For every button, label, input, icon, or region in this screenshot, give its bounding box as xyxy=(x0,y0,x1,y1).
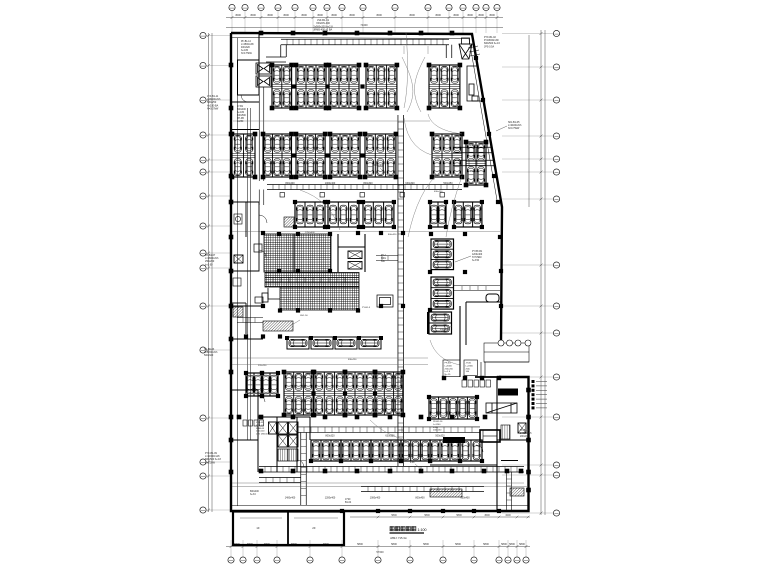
svg-text:630x250: 630x250 xyxy=(470,145,479,147)
svg-text:5800: 5800 xyxy=(424,514,430,517)
svg-text:5800: 5800 xyxy=(357,542,363,546)
svg-text:5800: 5800 xyxy=(391,542,397,546)
svg-text:JYSF: JYSF xyxy=(345,499,351,501)
svg-text:4500: 4500 xyxy=(235,13,241,17)
svg-text:150x100: 150x100 xyxy=(256,431,265,433)
svg-text:JB-1.50: JB-1.50 xyxy=(300,315,308,317)
svg-text:800x320: 800x320 xyxy=(363,182,373,185)
svg-text:800x400: 800x400 xyxy=(415,497,425,500)
svg-text:PF-B1: PF-B1 xyxy=(445,363,452,365)
svg-text:PF-B1-14: PF-B1-14 xyxy=(241,41,252,43)
svg-text:5800: 5800 xyxy=(391,514,397,517)
svg-text:m3/h: m3/h xyxy=(433,427,439,429)
svg-text:500x250: 500x250 xyxy=(443,182,453,185)
svg-text:5800: 5800 xyxy=(423,542,429,546)
svg-text:1:100: 1:100 xyxy=(418,528,427,532)
svg-text:4500: 4500 xyxy=(267,13,273,17)
svg-text:SYSTEM: SYSTEM xyxy=(472,257,482,259)
svg-text:JY-B1: JY-B1 xyxy=(466,363,473,365)
svg-text:5800: 5800 xyxy=(519,542,525,546)
svg-text:3200: 3200 xyxy=(505,514,511,517)
svg-text:2x250: 2x250 xyxy=(237,121,244,123)
svg-text:4500: 4500 xyxy=(435,13,441,17)
svg-text:320x250: 320x250 xyxy=(258,365,267,367)
svg-text:500x320: 500x320 xyxy=(435,435,445,438)
svg-text:4500: 4500 xyxy=(478,13,484,17)
svg-text:h+3.50: h+3.50 xyxy=(472,260,480,262)
svg-text:5800: 5800 xyxy=(456,514,462,517)
svg-text:4500: 4500 xyxy=(331,13,337,17)
svg-text:jRMB-400 x2 BA: jRMB-400 x2 BA xyxy=(313,29,333,32)
svg-text:L=4500m3/h: L=4500m3/h xyxy=(241,44,255,46)
svg-text:h+2.60: h+2.60 xyxy=(205,263,213,266)
svg-text:800x320: 800x320 xyxy=(325,435,335,438)
svg-text:5600x400: 5600x400 xyxy=(373,165,384,167)
svg-text:L=1800: L=1800 xyxy=(466,365,474,367)
svg-text:1000x400: 1000x400 xyxy=(325,182,336,185)
svg-text:XFB-02: XFB-02 xyxy=(256,425,264,427)
svg-text:PF-B1-12: PF-B1-12 xyxy=(520,430,531,432)
svg-text:1200x400: 1200x400 xyxy=(325,497,336,500)
svg-text:PY/PF-B1: PY/PF-B1 xyxy=(472,251,483,253)
svg-text:5800: 5800 xyxy=(455,542,461,546)
svg-text:1250x400: 1250x400 xyxy=(305,232,315,234)
svg-text:B1-04: B1-04 xyxy=(345,502,352,504)
svg-text:630x400: 630x400 xyxy=(460,497,470,500)
svg-text:L=1200: L=1200 xyxy=(433,424,441,426)
svg-text:630x250: 630x250 xyxy=(434,191,443,193)
svg-text:4500: 4500 xyxy=(467,13,473,17)
svg-text:4500: 4500 xyxy=(409,13,415,17)
svg-text:4500: 4500 xyxy=(349,13,355,17)
svg-text:400x320: 400x320 xyxy=(241,47,251,49)
svg-text:630x320: 630x320 xyxy=(405,182,415,185)
svg-text:800x400: 800x400 xyxy=(250,491,260,493)
svg-text:630x: 630x xyxy=(381,258,387,260)
svg-text:4500: 4500 xyxy=(484,514,490,517)
svg-text:500x320: 500x320 xyxy=(204,354,214,357)
svg-text:200x160: 200x160 xyxy=(433,430,442,432)
svg-text:5800: 5800 xyxy=(483,542,489,546)
svg-text:630x500: 630x500 xyxy=(237,115,247,117)
svg-text:250x200: 250x200 xyxy=(445,368,454,370)
svg-text:XFB-01: XFB-01 xyxy=(256,422,264,424)
svg-text:JY-B1: JY-B1 xyxy=(237,106,244,108)
svg-text:PY-1: PY-1 xyxy=(381,255,387,257)
svg-text:h+3.0: h+3.0 xyxy=(250,494,257,496)
svg-text:PY-B1-3: PY-B1-3 xyxy=(362,307,371,309)
svg-text:200x160: 200x160 xyxy=(520,436,530,438)
svg-text:h+2.6: h+2.6 xyxy=(445,371,451,373)
svg-text:630x500: 630x500 xyxy=(440,329,449,331)
svg-text:h+2.80: h+2.80 xyxy=(237,112,245,114)
svg-text:800x320: 800x320 xyxy=(388,234,397,236)
svg-text:4500: 4500 xyxy=(301,13,307,17)
svg-text:4500: 4500 xyxy=(376,13,382,17)
svg-text:N=.25: N=.25 xyxy=(445,374,452,376)
svg-text:630x250: 630x250 xyxy=(470,171,479,173)
svg-text:N=0.75kW: N=0.75kW xyxy=(508,127,520,130)
svg-text:4500: 4500 xyxy=(453,13,459,17)
svg-text:h+2.80: h+2.80 xyxy=(241,50,249,52)
svg-text:1400x400: 1400x400 xyxy=(285,497,296,500)
svg-text:4500: 4500 xyxy=(250,13,256,17)
svg-text:JPS-0.5A: JPS-0.5A xyxy=(484,45,495,48)
svg-text:4-B1: 4-B1 xyxy=(410,462,415,464)
svg-text:FH-FB: FH-FB xyxy=(237,118,244,120)
svg-text:800x400: 800x400 xyxy=(285,182,295,185)
svg-text:630x250: 630x250 xyxy=(348,359,357,361)
svg-text:74300: 74300 xyxy=(360,23,368,27)
svg-text:JSG DN100: JSG DN100 xyxy=(256,434,268,436)
svg-text:5800: 5800 xyxy=(509,542,515,546)
svg-text:JZMJ: 715.3m: JZMJ: 715.3m xyxy=(390,536,408,540)
svg-text:5800: 5800 xyxy=(501,542,507,546)
svg-text:4500: 4500 xyxy=(317,13,323,17)
svg-text:630x320: 630x320 xyxy=(385,435,395,438)
svg-text:L=3000: L=3000 xyxy=(445,365,453,367)
svg-text:N=0.75kW: N=0.75kW xyxy=(241,53,253,55)
svg-text:1000x400: 1000x400 xyxy=(370,497,381,500)
svg-text:1F: 1F xyxy=(256,526,260,530)
svg-text:PF-B1-16: PF-B1-16 xyxy=(433,421,443,423)
svg-text:2F: 2F xyxy=(312,526,316,530)
svg-text:WSB-03: WSB-03 xyxy=(256,428,265,430)
svg-text:4500: 4500 xyxy=(283,13,289,17)
svg-text:1200x400: 1200x400 xyxy=(472,254,483,256)
svg-text:N=2.2kW: N=2.2kW xyxy=(205,461,216,464)
svg-text:L=800m3/h: L=800m3/h xyxy=(520,433,532,435)
svg-text:500x400: 500x400 xyxy=(237,109,247,111)
svg-text:4500: 4500 xyxy=(489,13,495,17)
svg-text:57300: 57300 xyxy=(376,550,384,554)
svg-text:N=0.37kW: N=0.37kW xyxy=(207,107,219,110)
